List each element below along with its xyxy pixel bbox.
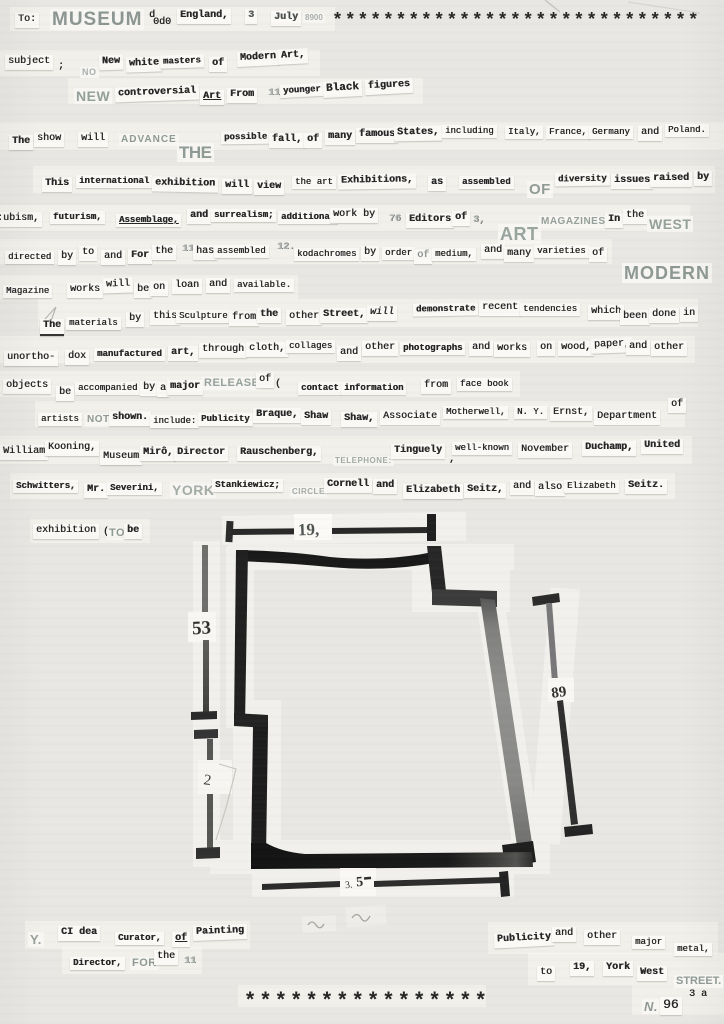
svg-text:89: 89 bbox=[550, 684, 567, 702]
svg-text:53: 53 bbox=[191, 617, 211, 639]
svg-text:19,: 19, bbox=[298, 520, 320, 540]
svg-text:3.: 3. bbox=[344, 880, 353, 892]
svg-text:5: 5 bbox=[355, 875, 363, 891]
